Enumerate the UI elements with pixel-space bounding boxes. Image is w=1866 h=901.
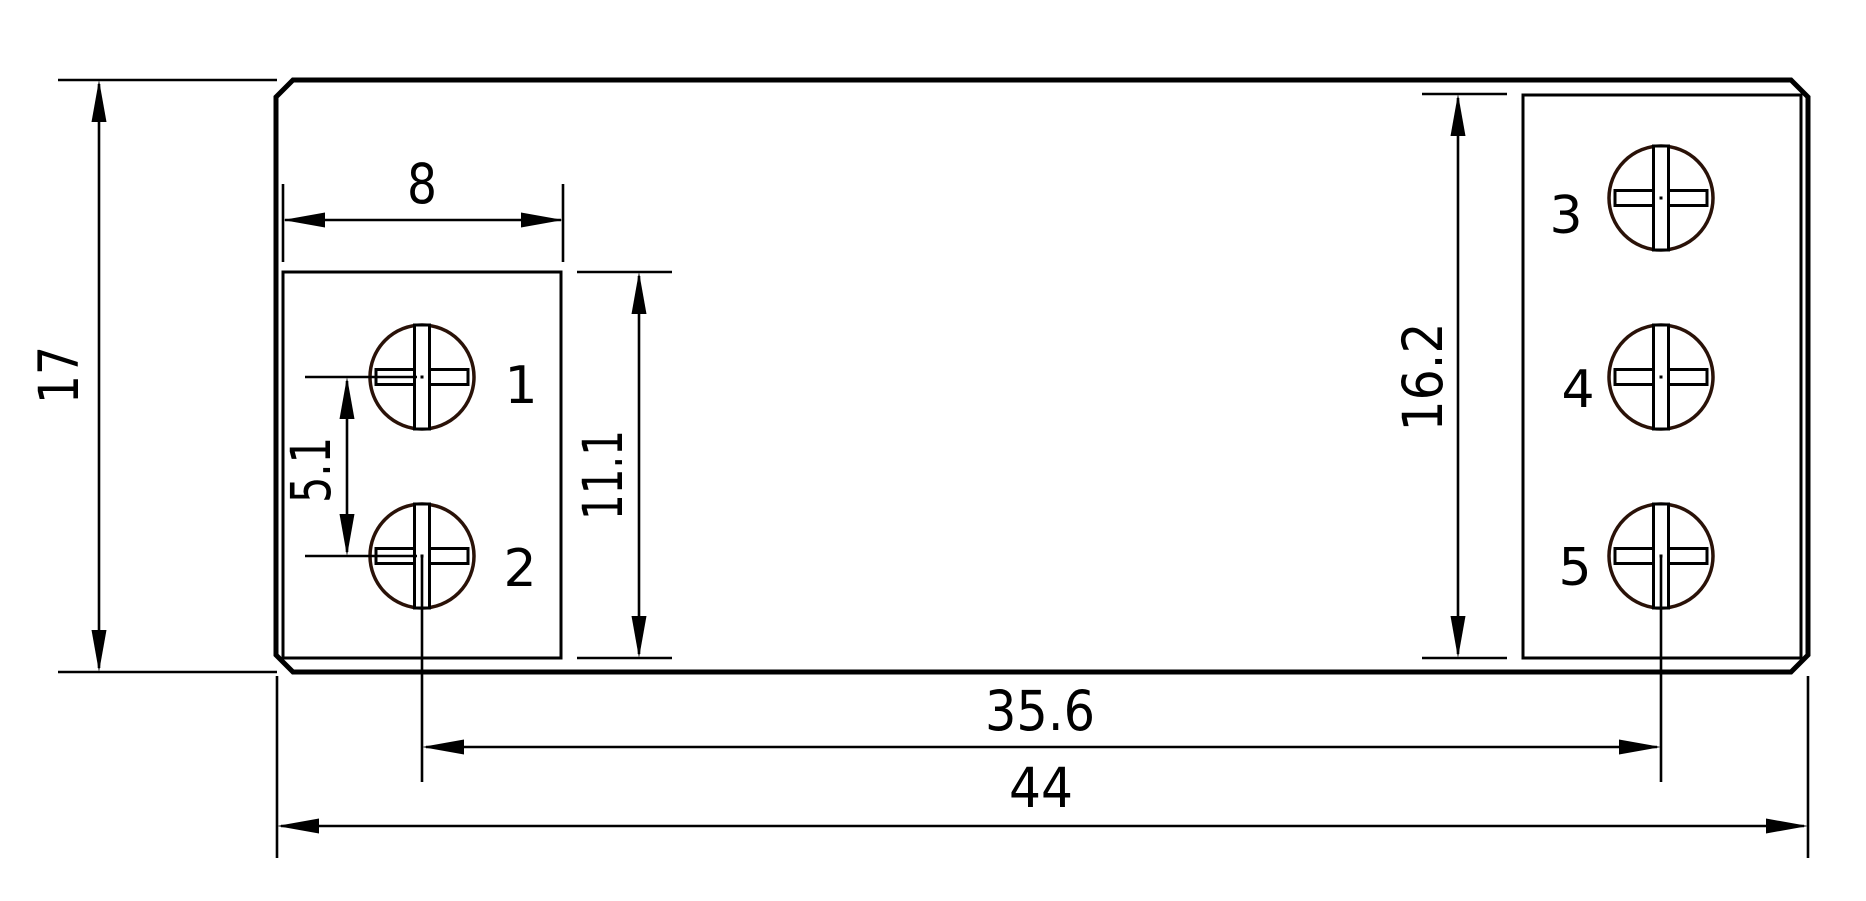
arrow-up-icon <box>92 80 107 122</box>
arrow-right-icon <box>521 213 563 228</box>
dim-screw-pitch: 5.1 <box>279 377 355 556</box>
dim-left-block-height: 11.1 <box>571 272 672 658</box>
terminal-label-2: 2 <box>503 539 536 599</box>
dim-overall-height-value: 17 <box>27 346 91 404</box>
terminal-label-4: 4 <box>1561 360 1594 420</box>
arrow-right-icon <box>1766 819 1808 834</box>
terminal-label-3: 3 <box>1549 186 1582 246</box>
arrow-down-icon <box>340 514 355 556</box>
dim-overall-height: 17 <box>27 80 277 672</box>
arrow-down-icon <box>92 630 107 672</box>
screw-terminal-1 <box>305 325 474 429</box>
screw-terminal-2 <box>305 504 474 782</box>
dim-block-width: 8 <box>283 152 563 262</box>
screw-terminal-4 <box>1609 325 1713 429</box>
arrow-down-icon <box>632 616 647 658</box>
arrow-up-icon <box>340 377 355 419</box>
dim-right-block-height: 16.2 <box>1391 94 1507 658</box>
arrow-right-icon <box>1619 740 1661 755</box>
dim-left-block-height-value: 11.1 <box>571 430 635 520</box>
arrow-left-icon <box>277 819 319 834</box>
dim-screw-span: 35.6 <box>422 679 1661 755</box>
dim-overall-width-value: 44 <box>1009 756 1073 820</box>
screw-center-mark <box>1660 197 1663 200</box>
screw-center-mark <box>1660 376 1663 379</box>
arrow-down-icon <box>1451 616 1466 658</box>
drawing-svg: 17 8 5.1 11.1 16.2 35.6 <box>0 0 1866 901</box>
technical-drawing-canvas: 17 8 5.1 11.1 16.2 35.6 <box>0 0 1866 901</box>
dim-screw-pitch-value: 5.1 <box>279 437 343 503</box>
arrow-left-icon <box>283 213 325 228</box>
screw-terminal-3 <box>1609 146 1713 250</box>
arrow-up-icon <box>632 272 647 314</box>
screw-center-mark <box>421 376 424 379</box>
dim-block-width-value: 8 <box>407 152 437 216</box>
terminal-label-5: 5 <box>1558 538 1591 598</box>
screw-terminal-5 <box>1609 504 1713 782</box>
arrow-left-icon <box>422 740 464 755</box>
arrow-up-icon <box>1451 94 1466 136</box>
dim-right-block-height-value: 16.2 <box>1391 323 1455 432</box>
terminal-label-1: 1 <box>504 356 537 416</box>
dim-screw-span-value: 35.6 <box>985 679 1095 743</box>
